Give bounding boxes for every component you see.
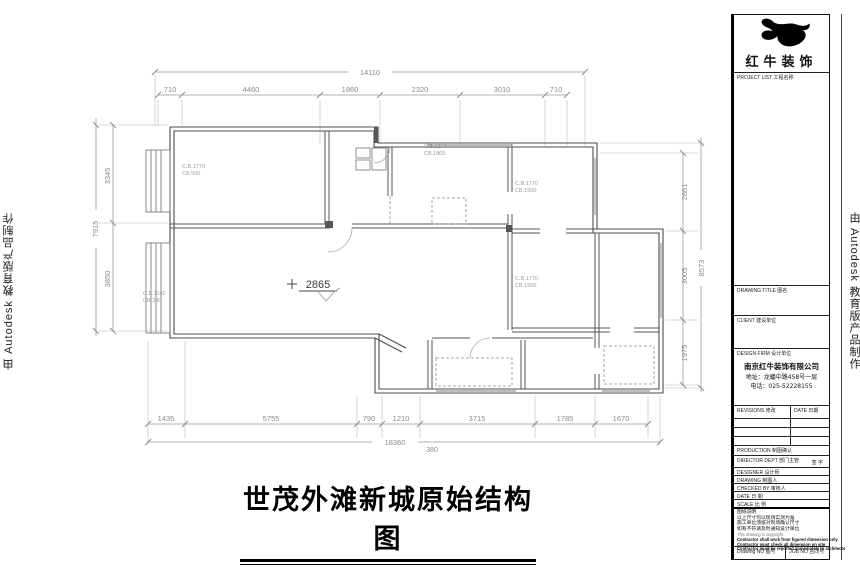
revisions-date-label: DATE 日期	[791, 406, 829, 418]
drawing-title-label: DRAWING TITLE 图名	[737, 287, 826, 294]
stair-boxes	[356, 148, 386, 170]
exterior-walls	[170, 127, 663, 393]
dim-top: 1860	[342, 85, 359, 94]
dim-right: 3005	[680, 268, 689, 285]
drafter-row: DRAWING 制图人	[734, 475, 829, 483]
company-info: 南京红牛装饰有限公司 地址：龙蟠中路458号一层 电话：025-52228155	[737, 361, 826, 391]
title-block-panel: 红牛装饰 PROJECT LIST 工程名称 DRAWING TITLE 图名 …	[731, 14, 830, 560]
level-marker: 2865	[287, 279, 340, 301]
dim-top: 3010	[494, 85, 511, 94]
dim-bottom-offset: 380	[426, 447, 438, 454]
drawing-main-title: 世茂外滩新城原始结构图	[240, 478, 536, 556]
windows	[146, 143, 661, 391]
dim-top: 710	[164, 85, 177, 94]
revision-row	[734, 427, 829, 436]
dim-bottom: 3715	[469, 414, 486, 423]
level-marker-value: 2865	[306, 279, 330, 291]
dimensions-left: 3345 3850 7915	[91, 118, 116, 336]
dim-bottom-total: 18360	[385, 438, 406, 447]
designer-row: DESIGNER 设计师	[734, 467, 829, 475]
client-section: CLIENT 建设单位	[734, 315, 829, 348]
company-address: 地址：龙蟠中路458号一层	[737, 373, 826, 382]
scale-row: SCALE 比 例	[734, 499, 829, 507]
redbull-logo-icon	[750, 17, 814, 51]
production-row: PRODUCTION 制图确认	[734, 445, 829, 455]
revision-row	[734, 436, 829, 445]
drawing-title-block: 世茂外滩新城原始结构图	[240, 478, 536, 565]
dim-top: 710	[550, 85, 563, 94]
dim-bottom: 1210	[393, 414, 410, 423]
drawing-sheet: 由 Autodesk 教育版产品制作 由 Autodesk 教育版产品制作	[0, 0, 860, 580]
drawing-title-section: DRAWING TITLE 图名	[734, 285, 829, 315]
dim-right-total: 8573	[697, 260, 706, 277]
room-label: CB.500	[182, 171, 200, 177]
room-label: C.B.1240	[424, 144, 447, 150]
dim-bottom: 5755	[263, 414, 280, 423]
dim-left: 3345	[103, 168, 112, 185]
room-label: CB.1805	[424, 151, 445, 157]
design-firm-label: DESIGN FIRM 设计单位	[737, 350, 826, 357]
dimensions-bottom: 1435 5755 790 1210 3715 1785 1670 18360 …	[145, 414, 663, 454]
revision-row	[734, 418, 829, 427]
dim-right: 1975	[680, 345, 689, 362]
dim-top: 4460	[243, 85, 260, 94]
project-label: PROJECT LIST 工程名称	[737, 74, 826, 81]
design-firm-section: DESIGN FIRM 设计单位 南京红牛装饰有限公司 地址：龙蟠中路458号一…	[734, 348, 829, 405]
room-label: C.B.1770	[515, 181, 538, 187]
revisions-header: REVISIONS 修改 DATE 日期	[734, 405, 829, 418]
title-underline-thick	[240, 559, 536, 562]
dim-top-total: 14110	[360, 68, 380, 77]
dim-bottom: 790	[363, 414, 376, 423]
dimensions-right: 2661 3005 1975 8573	[680, 138, 706, 392]
room-label: CB.1500	[515, 188, 536, 194]
director-row: DIRECTOR DEPT 部门主管 签 字	[734, 455, 829, 467]
checked-row: CHECKED BY 审核人	[734, 483, 829, 491]
notes-section: 图纸说明 以上尺寸均以现场实测为准 施工单位须核对现场确认尺寸 如有不符请及时通…	[734, 507, 829, 546]
project-section: PROJECT LIST 工程名称	[734, 73, 829, 285]
dim-left-total: 7915	[91, 221, 100, 238]
dim-top: 2320	[412, 85, 429, 94]
company-logo-section: 红牛装饰	[734, 15, 829, 73]
dim-bottom: 1435	[158, 414, 175, 423]
revisions-label: REVISIONS 修改	[734, 406, 791, 418]
brand-name: 红牛装饰	[737, 51, 826, 70]
production-label: PRODUCTION 制图确认	[737, 447, 826, 454]
room-label: CB.1500	[515, 283, 536, 289]
title-underline-thin	[240, 564, 536, 565]
room-label: C.B.1140	[143, 291, 166, 297]
room-label: C.B.1770	[515, 276, 538, 282]
dimensions-top: 14110 710 4460 1860 2320 3010 710	[152, 68, 588, 98]
client-label: CLIENT 建设单位	[737, 317, 826, 324]
dim-left: 3850	[103, 271, 112, 288]
interior-walls	[170, 131, 659, 389]
sign-label: 签 字	[812, 459, 823, 466]
room-label: CB.340	[143, 298, 161, 304]
dim-bottom: 1785	[557, 414, 574, 423]
room-label: C.B.1770	[182, 164, 205, 170]
company-phone: 电话：025-52228155	[737, 382, 826, 391]
company-name: 南京红牛装饰有限公司	[737, 361, 826, 373]
door-arcs	[328, 147, 490, 358]
date-row: DATE 日 期	[734, 491, 829, 499]
dim-bottom: 1670	[613, 414, 630, 423]
dim-right: 2661	[680, 184, 689, 201]
note-line: Contractor must be reported immediately …	[737, 547, 826, 552]
